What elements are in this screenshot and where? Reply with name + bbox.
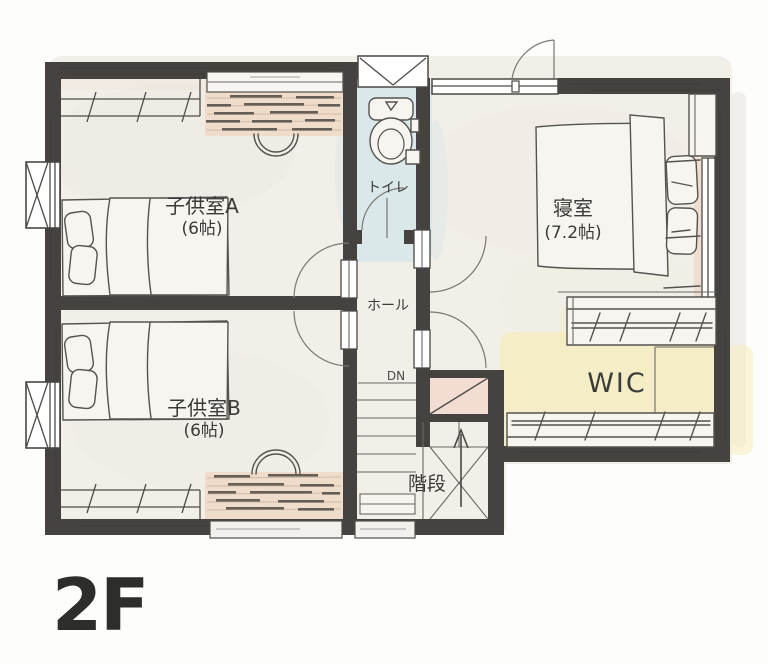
wic-hanger-top (567, 297, 716, 345)
pillow (64, 210, 95, 249)
pillow (68, 245, 98, 286)
duvet-fold (630, 115, 668, 276)
storage-shelf (430, 378, 488, 414)
wic-label: WIC (587, 368, 647, 399)
bedroom-cabinet (689, 94, 716, 156)
bedroom-size-label: (7.2帖) (544, 223, 601, 243)
kids-a-name-label: 子供室A (165, 194, 239, 218)
stairs-label: 階段 (408, 473, 446, 495)
kids-a-size-label: (6帖) (181, 219, 222, 239)
pillow (64, 334, 95, 373)
window-toilet-top (358, 56, 428, 87)
eave-strips (210, 521, 415, 538)
window-kids-b-left (26, 382, 60, 448)
toilet-label: トイレ (367, 180, 409, 196)
pillow (68, 369, 98, 410)
floor-plan-page: 子供室A (6帖) 子供室B (6帖) 寝室 (7.2帖) トイレ ホール WI… (0, 0, 768, 664)
toilet-paper-holder (411, 119, 419, 132)
dn-label: DN (387, 369, 405, 383)
window-kids-a-left (26, 162, 60, 228)
kids-b-size-label: (6帖) (183, 421, 224, 441)
toilet-fixture (369, 98, 420, 164)
toilet-shelf (406, 150, 420, 164)
kids-b-name-label: 子供室B (167, 396, 241, 420)
floor-label: 2F (52, 563, 147, 647)
pillow (666, 155, 698, 205)
hall-label: ホール (367, 298, 409, 314)
floor-plan-drawing: 子供室A (6帖) 子供室B (6帖) 寝室 (7.2帖) トイレ ホール WI… (0, 0, 768, 664)
wic-hanger-bottom (507, 412, 714, 447)
closet-a-slider (207, 72, 343, 92)
bedroom-name-label: 寝室 (553, 196, 593, 220)
